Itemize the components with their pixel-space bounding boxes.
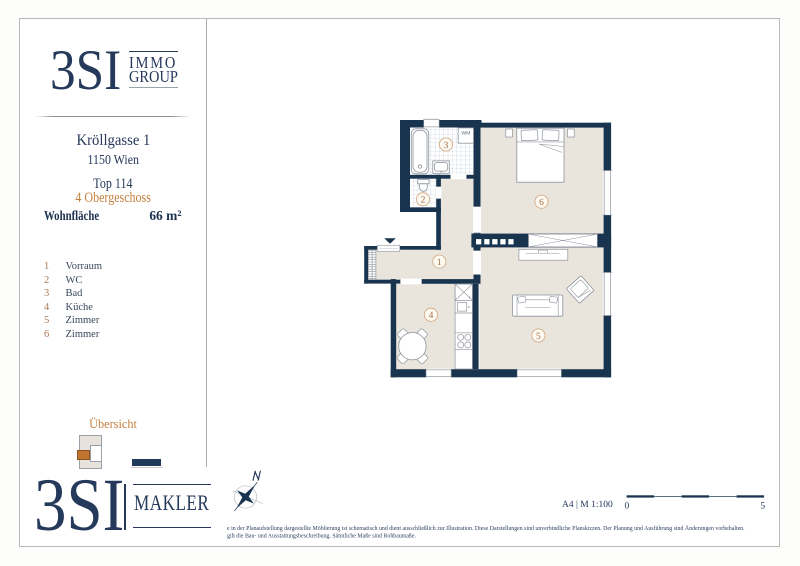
svg-text:A4 | M 1:100: A4 | M 1:100 <box>562 500 613 510</box>
svg-text:6: 6 <box>539 198 544 208</box>
svg-text:WM: WM <box>461 131 470 137</box>
svg-text:3: 3 <box>444 141 449 151</box>
svg-text:0: 0 <box>625 502 630 512</box>
svg-text:5: 5 <box>760 502 765 512</box>
svg-text:2: 2 <box>421 196 426 206</box>
svg-text:4: 4 <box>429 311 434 321</box>
svg-text:1: 1 <box>437 258 442 268</box>
svg-text:5: 5 <box>536 332 541 342</box>
